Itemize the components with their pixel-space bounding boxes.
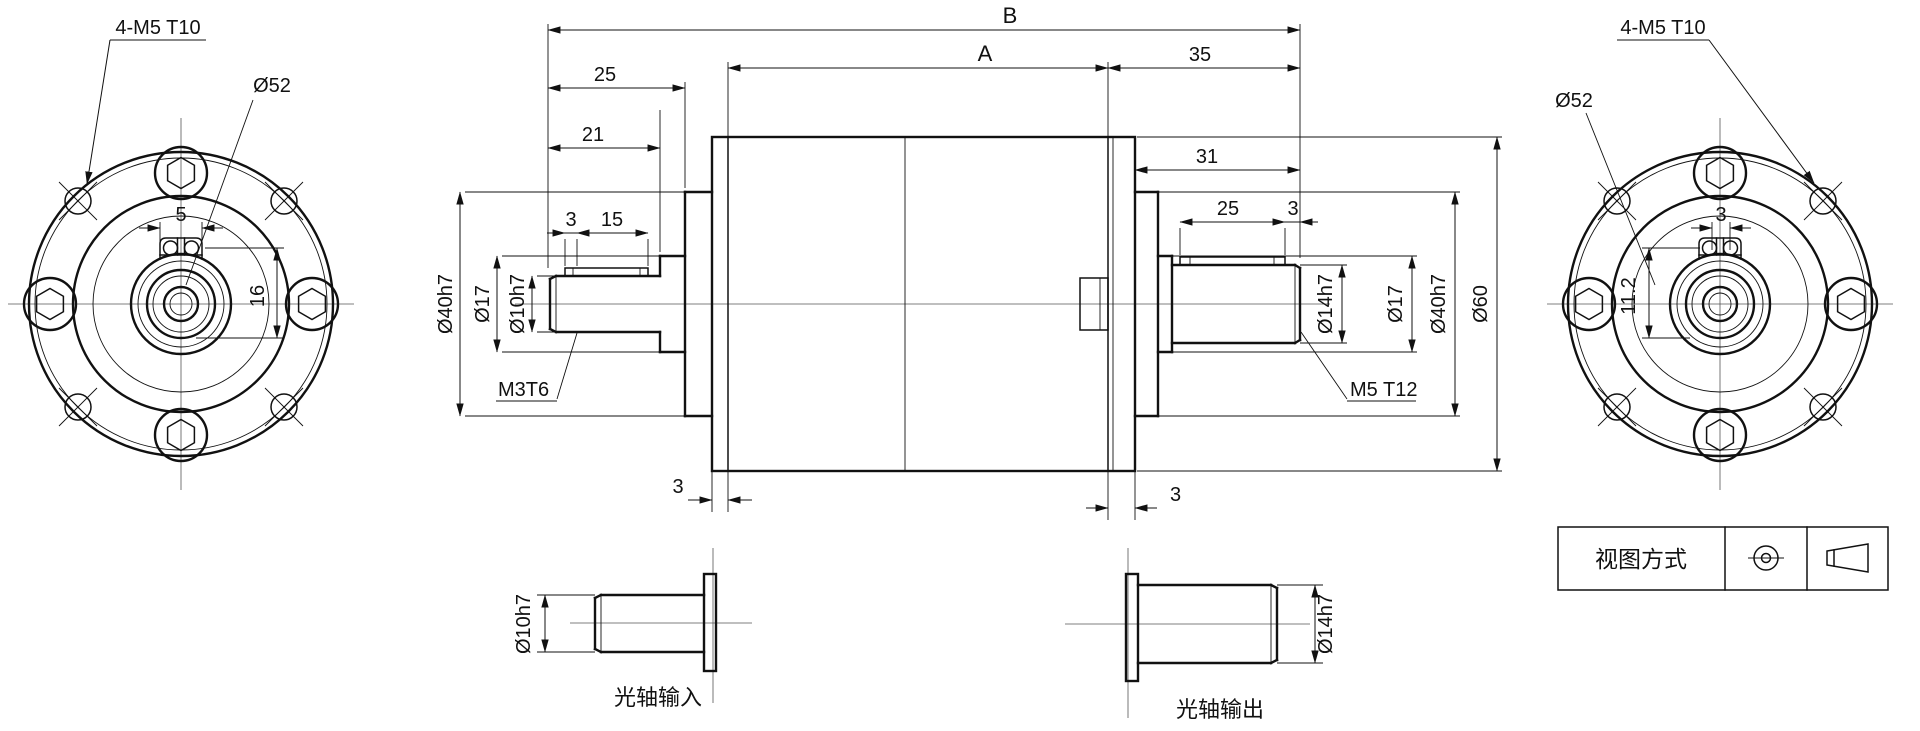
- body-dia-dim: Ø60: [1470, 285, 1492, 323]
- section-view: B A 35 25 21 31 3 15 25 3 Ø40h7 Ø17: [435, 3, 1502, 520]
- input-flat-length-dim: 15: [601, 209, 623, 231]
- input-shaft-dia-dim: Ø10h7: [507, 274, 529, 334]
- projection-cone-icon: [1827, 544, 1868, 572]
- engineering-drawing-page: 4-M5 T10 Ø52 5 16 4-M5 T10 Ø52 3: [0, 0, 1920, 731]
- output-thread-callout: M5 T12: [1350, 379, 1417, 401]
- output-shaft-detail-view: Ø14h7 光轴输出: [1065, 548, 1337, 722]
- output-pilot-dia-dim: Ø40h7: [1428, 274, 1450, 334]
- overall-length-dim: B: [1003, 3, 1018, 28]
- output-shaft-length-dim: 31: [1196, 146, 1218, 168]
- output-detail-dia-dim: Ø14h7: [1315, 594, 1337, 654]
- input-boss-edge: [704, 574, 716, 671]
- input-shaft: [550, 268, 660, 332]
- input-shaft-length-dim: 21: [582, 124, 604, 146]
- front-length-dim: 25: [594, 64, 616, 86]
- output-boss-dia-dim: Ø17: [1385, 285, 1407, 323]
- output-detail-caption: 光轴输出: [1176, 697, 1264, 722]
- input-thread-callout: M3T6: [498, 379, 549, 401]
- output-shaft-dia-dim: Ø14h7: [1315, 274, 1337, 334]
- right-thread-callout: 4-M5 T10: [1620, 17, 1705, 39]
- output-flat-length-dim: 25: [1217, 198, 1239, 220]
- input-pilot-dia-dim: Ø40h7: [435, 274, 457, 334]
- gearbox-drawing: 4-M5 T10 Ø52 5 16 4-M5 T10 Ø52 3: [0, 0, 1920, 731]
- left-clamp-width-dim: 5: [175, 204, 186, 226]
- flange-face-geometry: [8, 118, 354, 490]
- right-bolt-circle-label: Ø52: [1555, 90, 1593, 112]
- right-clamp-width-dim: 3: [1715, 204, 1726, 226]
- front-plate-thickness-dim: 3: [672, 476, 683, 498]
- right-bore-depth-dim: 11.2: [1618, 277, 1640, 314]
- projection-box-label: 视图方式: [1595, 546, 1687, 572]
- left-flange-view: 4-M5 T10 Ø52 5 16: [8, 17, 354, 490]
- projection-method-box: 视图方式: [1558, 527, 1888, 590]
- input-flat-setback-dim: 3: [565, 209, 576, 231]
- rear-length-dim: 35: [1189, 44, 1211, 66]
- flange-face-geometry: [1547, 118, 1893, 490]
- output-shaft: [1172, 257, 1300, 343]
- input-detail-caption: 光轴输入: [614, 685, 702, 710]
- rear-plate-thickness-dim: 3: [1170, 484, 1181, 506]
- input-shaft-detail-view: Ø10h7 光轴输入: [513, 548, 752, 710]
- projection-end-view-icon: [1748, 546, 1784, 570]
- input-detail-dia-dim: Ø10h7: [513, 594, 535, 654]
- body-length-dim: A: [978, 41, 993, 66]
- output-flat-setback-dim: 3: [1287, 198, 1298, 220]
- left-bore-depth-dim: 16: [247, 285, 269, 307]
- left-thread-callout: 4-M5 T10: [115, 17, 200, 39]
- right-flange-view: 4-M5 T10 Ø52 3 11.2: [1547, 17, 1893, 490]
- input-boss-dia-dim: Ø17: [472, 285, 494, 323]
- left-bolt-circle-label: Ø52: [253, 75, 291, 97]
